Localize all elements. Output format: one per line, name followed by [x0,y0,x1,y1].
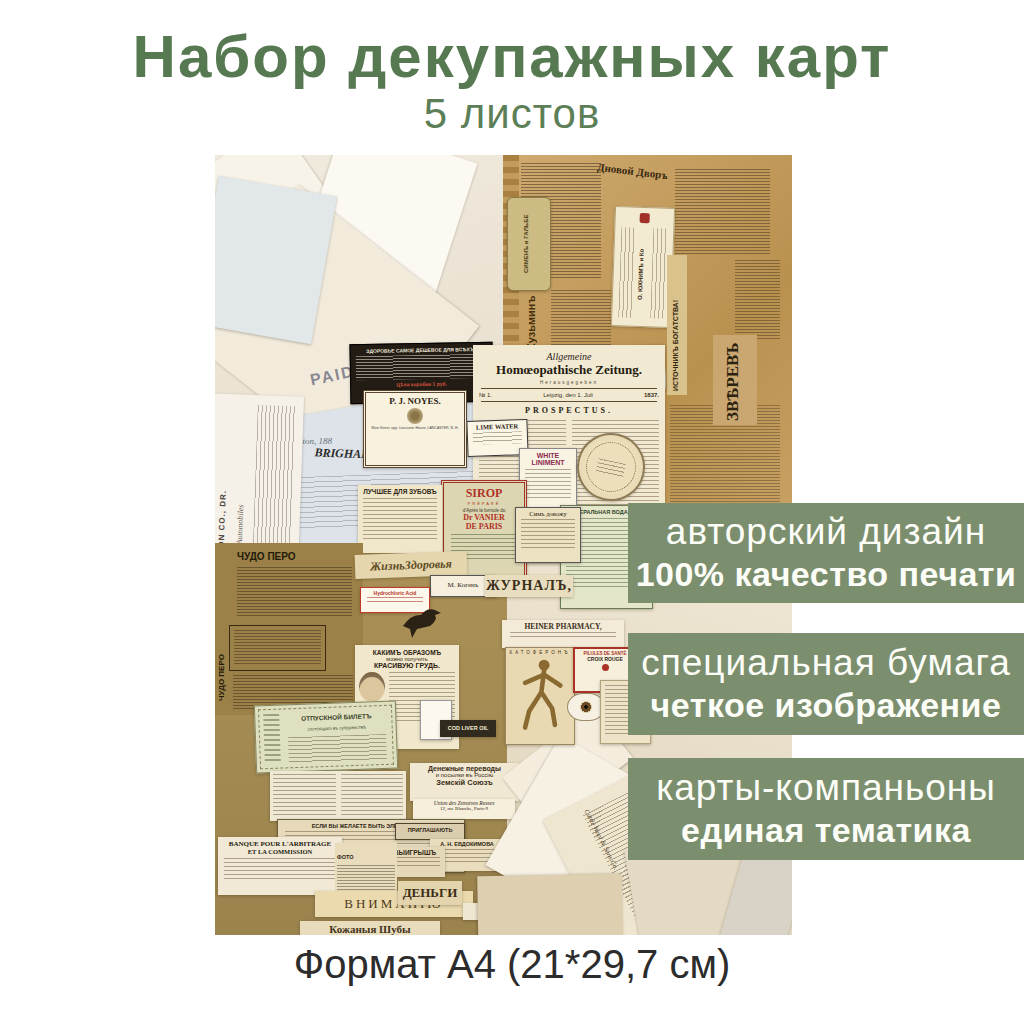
print-filler [525,469,571,499]
crow-illustration [397,600,451,640]
feature-banner-paper: специальная бумага четкое изображение [628,633,1024,735]
print-filler [390,857,440,869]
foto-text: ФОТО [337,854,353,860]
newsprint-filler [675,169,770,254]
sim-dovozhu-label: Симъ довожу [515,507,581,563]
zemstvos-line: Union des Zemstvos Russes 12, rue Blanch… [413,799,515,819]
katoferon-text: КАТОФЕРОНЪ [508,650,572,655]
katoferon-panel: КАТОФЕРОНЪ [505,647,575,745]
format-caption: Формат А4 (21*29,7 см) [0,942,1024,987]
jurnal-headline: ЖУРНАЛЪ, [485,575,573,597]
print-filler [618,227,635,317]
sim-dovozhu-text: Симъ довожу [518,510,578,517]
zverev-scrap: ЗВѢРЕВЪ [713,335,757,425]
banque-line1: BANQUE POUR L'ARBITRAGE [221,840,339,848]
lime-water-text: LIME WATER [469,422,524,431]
black-ad-title: ЗДОРОВЬЕ САМОЕ ДЕШЕВОЕ ДЛЯ ВСѢХЪ! [354,346,489,354]
banner-line-light: карты-компаньоны [656,767,996,810]
istochnik-text: ИСТОЧНИКЪ БОГАТСТВА! [672,259,679,391]
noyes-address: Main Street, opp. Lancaster House, LANCA… [369,426,461,430]
kuzmin-headline: Кузьминъ [525,270,537,350]
chudo-pero-page: ЧУДО ПЕРО ЧУДО ПЕРО [215,543,363,715]
zeitung-place: Leipzig, den 1. Juli [543,392,593,398]
sirop-name: Dr VANIER [447,513,521,522]
print-filler [510,632,616,640]
page-title: Набор декупажных карт [0,22,1024,91]
banner-line-bold: 100% качество печати [636,554,1017,595]
prospectus-heading: PROSPECTUS. [479,406,659,415]
zeitung-issue: № 1. [479,392,492,398]
heiner-text: HEINER PHARMACY, [504,622,622,631]
red-crest [640,213,650,223]
noyes-title: P. J. NOYES. [369,396,461,406]
grud-line1: КАКИМЪ ОБРАЗОМЪ [359,649,455,656]
dengi-headline: ДЕНЬГИ [398,881,462,905]
zubov-ad: ЛУЧШЕЕ ДЛЯ ЗУБОВЪ [358,485,442,553]
print-filler [356,354,487,380]
zeitung-year: 1837. [644,392,659,398]
print-filler [473,431,522,445]
print-filler [288,734,387,763]
noyes-emblem [407,408,423,424]
print-filler [273,774,336,818]
ticket-notes [270,771,406,821]
zverev-text: ЗВѢРЕВЪ [723,339,743,421]
liniment-word2: LINIMENT [523,459,573,466]
print-filler [224,858,336,882]
acid-text: Hydrochloric Acid [363,590,427,596]
banque-ad: BANQUE POUR L'ARBITRAGE ET LA COMMISSION [218,837,342,895]
otpusknoy-ticket: ОТПУСКНОЙ БИЛЕТЪ состоящаго въ супружест… [254,701,398,774]
feature-banner-companions: карты-компаньоны единая тематика [628,758,1024,860]
newsprint-filler [735,260,780,340]
chudo-pero-headline: ЧУДО ПЕРО [237,551,296,562]
red-dot [602,664,609,671]
feature-banner-design: авторский дизайн 100% качество печати [628,503,1024,603]
noyes-label: P. J. NOYES. Main Street, opp. Lancaster… [363,390,467,468]
sirop-title: SIROP [447,486,521,501]
banner-line-bold: единая тематика [681,810,971,851]
cod-liver-oil-label: COD LIVER OIL [440,720,496,737]
denper-line1: Денежные переводы [412,765,517,772]
heiner-pharmacy-strip: HEINER PHARMACY, [502,620,624,648]
newton-sub: Automobiles [235,424,248,544]
liniment-word1: WHITE [523,452,573,459]
print-filler [521,519,575,551]
product-card: Набор декупажных карт 5 листов PAID Bost… [0,0,1024,1021]
zubov-title: ЛУЧШЕЕ ДЛЯ ЗУБОВЪ [361,488,439,495]
banque-line2: ET LA COMMISSION [221,848,339,855]
sirop-city: DE PARIS [447,522,521,531]
eye-iris [580,701,592,713]
man-figure-illustration [511,657,569,733]
print-filler [650,228,667,318]
banner-line-light: специальная бумага [641,642,1010,685]
woman-portrait [359,672,385,702]
denper-line3: Земскій Союзъ [412,778,517,787]
money-transfer-ad: Денежные переводы и посылки въ Россію Зе… [410,763,519,801]
ticket-ornament [263,714,281,765]
banner-line-bold: четкое изображение [651,685,1002,726]
zeitung-masthead-title: Homœopathische Zeitung. [479,362,659,378]
zeitung-dateline: № 1. Leipzig, den 1. Juli 1837. [479,392,659,398]
chudo-pero-vertical: ЧУДО ПЕРО [217,551,226,701]
zeitung-subline: Herausgegeben [479,380,659,385]
shuby-headline: Кожаныя Шубы [300,921,440,935]
union-line2: 12, rue Blanche, Paris-9 [414,806,514,811]
priglashayut-chip: ПРИГЛАШАЮТЬ [395,823,465,840]
banner-line-light: авторский дизайн [666,511,986,554]
zeitung-masthead-top: Allgemeine [479,351,659,362]
print-filler [363,498,437,540]
rule [481,388,657,389]
crow-icon [397,600,451,640]
print-filler [341,774,404,818]
istochnik-strip: ИСТОЧНИКЪ БОГАТСТВА! [667,255,687,395]
print-filler [234,630,321,666]
red-print-card [477,874,624,935]
framed-ad [229,625,326,671]
sirop-sub1: PRÉPARÉ [447,501,521,506]
page-subtitle: 5 листов [0,90,1024,138]
rule [481,401,657,402]
print-filler [237,567,352,617]
pilules-line2: CROIX ROUGE [577,656,633,662]
grud-line3: КРАСИВУЮ ГРУДЬ. [359,662,455,669]
juhim-text: О. ЮХНИМЪ и Ко [636,228,645,320]
black-ad-price: Цѣна коробки 1 руб. [354,380,489,388]
juhim-card: О. ЮХНИМЪ и Ко [611,206,675,328]
